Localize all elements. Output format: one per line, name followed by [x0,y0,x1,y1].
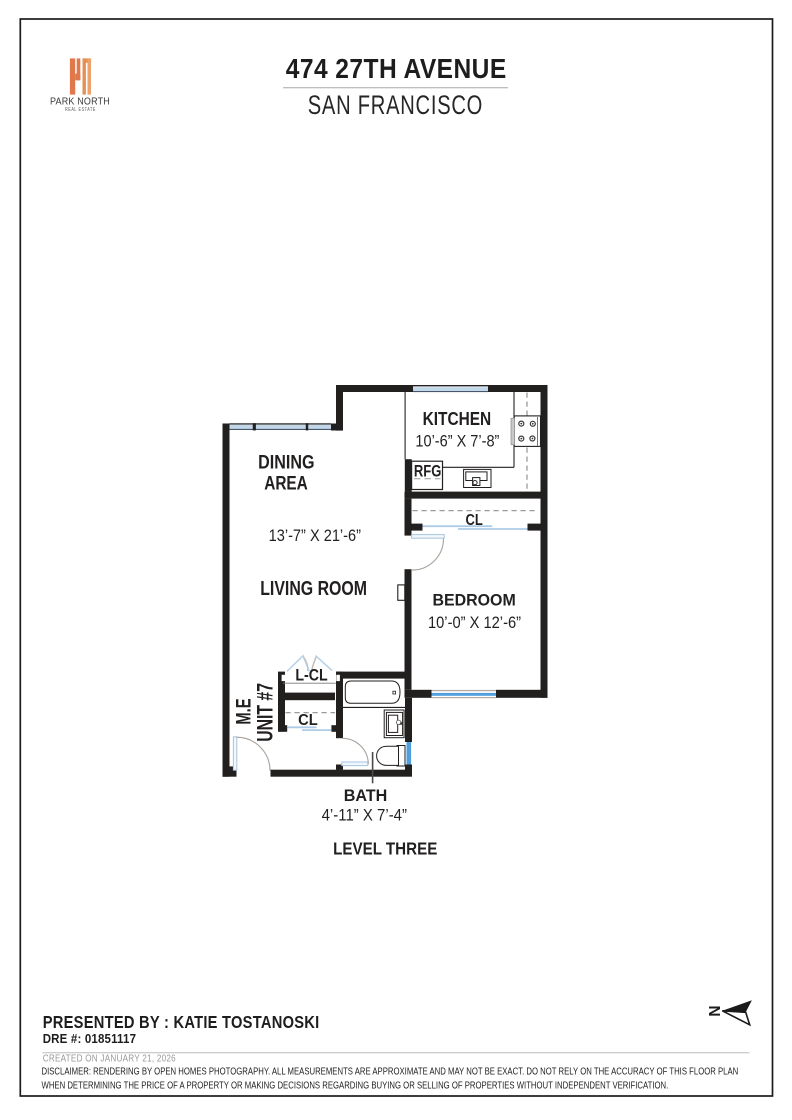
svg-text:LEVEL THREE: LEVEL THREE [333,838,437,858]
svg-text:CL: CL [466,512,483,530]
svg-text:M.E: M.E [231,698,255,724]
svg-text:PARK NORTH: PARK NORTH [50,96,110,108]
svg-text:CL: CL [298,711,318,729]
svg-text:PRESENTED BY : KATIE TOSTANOSK: PRESENTED BY : KATIE TOSTANOSKI [43,1013,320,1033]
svg-text:L-CL: L-CL [295,667,327,685]
svg-text:DRE #: 01851117: DRE #: 01851117 [43,1031,136,1046]
svg-text:BEDROOM: BEDROOM [432,591,515,609]
svg-text:LIVING ROOM: LIVING ROOM [260,576,367,599]
svg-text:DINING: DINING [258,451,314,473]
svg-text:KITCHEN: KITCHEN [423,407,492,429]
svg-text:AREA: AREA [264,472,308,494]
svg-text:BATH: BATH [344,787,388,805]
svg-text:4’-11” X 7’-4”: 4’-11” X 7’-4” [322,807,407,825]
svg-text:RFG: RFG [414,462,441,481]
svg-text:13’-7” X 21’-6”: 13’-7” X 21’-6” [269,527,361,545]
svg-text:WHEN DETERMINING THE PRICE OF: WHEN DETERMINING THE PRICE OF A PROPERTY… [42,1080,669,1091]
svg-text:10’-0” X 12’-6”: 10’-0” X 12’-6” [428,614,521,632]
svg-text:UNIT #7: UNIT #7 [253,683,278,742]
svg-text:DISCLAIMER: RENDERING BY OPEN: DISCLAIMER: RENDERING BY OPEN HOMES PHOT… [42,1066,739,1077]
svg-text:SAN FRANCISCO: SAN FRANCISCO [308,91,483,120]
svg-text:474 27TH AVENUE: 474 27TH AVENUE [286,52,507,84]
svg-text:10’-6” X 7’-8”: 10’-6” X 7’-8” [415,433,499,451]
svg-text:N: N [705,1006,722,1017]
svg-text:REAL ESTATE: REAL ESTATE [65,106,96,113]
svg-text:CREATED ON JANUARY 21, 2026: CREATED ON JANUARY 21, 2026 [43,1053,176,1064]
